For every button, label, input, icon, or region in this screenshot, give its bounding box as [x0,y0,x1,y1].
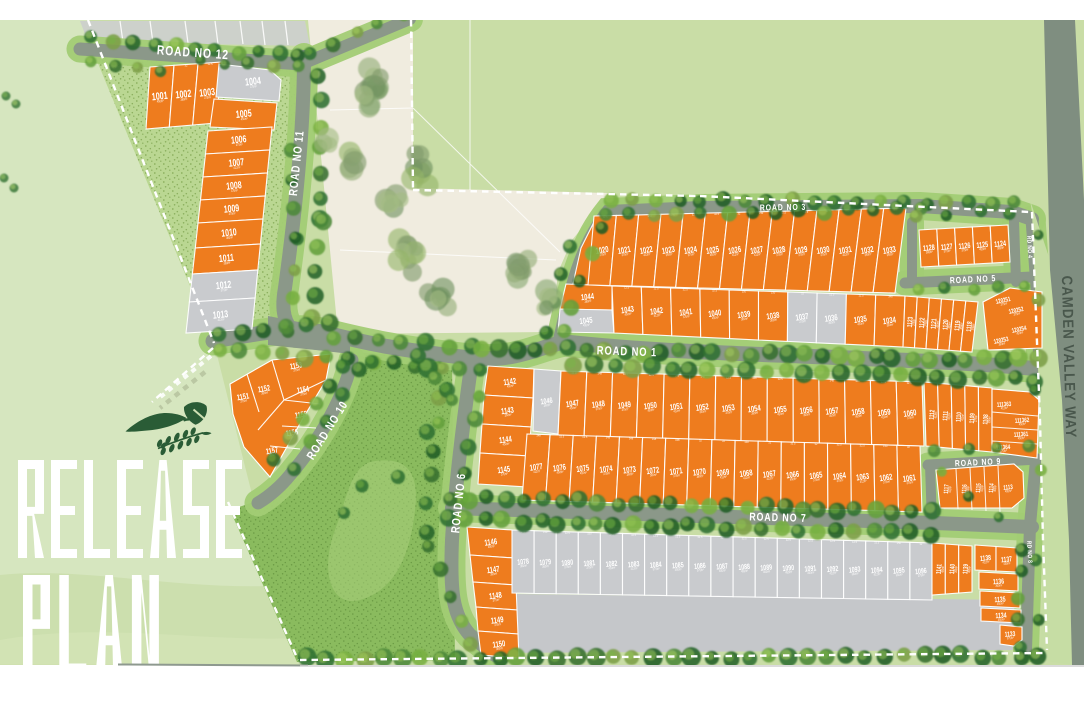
svg-text:360m²: 360m² [926,249,933,254]
svg-text:32.5: 32.5 [697,535,703,539]
svg-text:375m²: 375m² [906,480,913,486]
svg-text:450m²: 450m² [741,568,748,573]
svg-text:12.5: 12.5 [852,540,858,544]
svg-text:32.5: 32.5 [712,289,718,293]
svg-text:12.5: 12.5 [830,539,836,543]
svg-text:12.5: 12.5 [624,286,630,290]
svg-text:360m²: 360m² [896,572,903,577]
svg-text:412m²: 412m² [829,570,836,575]
svg-text:375m²: 375m² [943,248,950,253]
svg-text:375m²: 375m² [973,415,978,422]
svg-text:348: 348 [536,434,541,438]
svg-text:450m²: 450m² [807,570,814,575]
svg-text:12.5: 12.5 [565,531,571,535]
svg-text:450m²: 450m² [967,566,972,573]
svg-text:375m²: 375m² [725,410,732,416]
svg-text:348: 348 [606,436,611,440]
svg-text:375m²: 375m² [621,407,628,413]
svg-text:450m²: 450m² [997,601,1004,606]
svg-text:450m²: 450m² [979,246,986,251]
svg-text:450m²: 450m² [998,617,1005,622]
svg-text:450m²: 450m² [583,322,590,327]
svg-text:RD NO 4: RD NO 4 [1025,236,1033,259]
svg-text:348: 348 [629,436,634,440]
svg-text:360m²: 360m² [543,402,550,408]
svg-text:450m²: 450m² [569,405,576,411]
svg-text:12.5: 12.5 [786,538,792,542]
svg-text:450m²: 450m² [1018,435,1025,440]
svg-text:360m²: 360m² [490,571,497,577]
svg-text:412m²: 412m² [982,559,989,564]
svg-text:412m²: 412m² [233,165,240,170]
svg-text:32.5: 32.5 [860,443,866,447]
svg-text:360m²: 360m² [542,564,549,569]
svg-text:450m²: 450m² [1005,488,1012,493]
svg-text:450m²: 450m² [502,441,509,447]
svg-text:450m²: 450m² [777,411,784,417]
svg-text:450m²: 450m² [719,568,726,573]
svg-text:450m²: 450m² [763,569,770,574]
svg-text:412m²: 412m² [881,414,888,420]
svg-text:450m²: 450m² [157,98,164,103]
svg-text:360m²: 360m² [997,245,1004,250]
svg-text:12.5: 12.5 [808,538,814,542]
svg-text:412m²: 412m² [673,408,680,414]
svg-text:360m²: 360m² [803,412,810,418]
svg-text:412m²: 412m² [766,476,773,482]
svg-text:360m²: 360m² [650,472,657,478]
svg-text:360m²: 360m² [699,409,706,415]
svg-text:450m²: 450m² [1003,561,1010,566]
svg-text:360m²: 360m² [751,410,758,416]
svg-text:450m²: 450m² [785,569,792,574]
svg-text:32.5: 32.5 [714,212,720,216]
svg-text:375m²: 375m² [250,84,257,89]
svg-text:375m²: 375m² [961,247,968,252]
svg-text:375m²: 375m² [236,142,243,147]
svg-text:450m²: 450m² [488,544,495,550]
svg-text:150: 150 [543,530,548,534]
svg-text:360m²: 360m² [226,235,233,240]
svg-text:ROAD NO 3: ROAD NO 3 [760,202,807,213]
svg-text:375m²: 375m² [918,573,925,578]
svg-text:412m²: 412m² [1001,405,1008,410]
svg-text:450m²: 450m² [857,321,864,327]
svg-text:360m²: 360m² [828,320,835,326]
svg-text:412m²: 412m² [720,474,727,480]
svg-text:12.5: 12.5 [858,294,864,298]
svg-text:450m²: 450m² [608,565,615,570]
svg-text:450m²: 450m² [992,485,997,492]
svg-text:412m²: 412m² [979,485,984,492]
svg-text:375m²: 375m² [1007,635,1014,640]
svg-text:375m²: 375m² [603,471,610,477]
svg-text:360m²: 360m² [520,563,527,568]
svg-text:12.5: 12.5 [764,537,770,541]
svg-text:32.5: 32.5 [742,536,748,540]
svg-text:360m²: 360m² [496,646,503,652]
svg-text:32.5: 32.5 [631,533,637,537]
svg-text:360m²: 360m² [696,473,703,479]
svg-text:375m²: 375m² [492,597,499,603]
svg-text:412m²: 412m² [743,475,750,481]
svg-text:32.5: 32.5 [837,443,843,447]
svg-text:150: 150 [883,444,888,448]
svg-text:412m²: 412m² [860,478,867,484]
svg-text:450m²: 450m² [940,566,945,573]
svg-text:12.5: 12.5 [675,534,681,538]
svg-text:412m²: 412m² [947,486,952,493]
svg-text:450m²: 450m² [580,470,587,476]
svg-text:375m²: 375m² [673,473,680,479]
svg-text:32.5: 32.5 [874,541,880,545]
svg-text:412m²: 412m² [217,317,224,322]
svg-text:375m²: 375m² [228,211,235,216]
svg-text:450m²: 450m² [675,567,682,572]
svg-text:360m²: 360m² [626,471,633,477]
svg-text:450m²: 450m² [507,383,514,389]
svg-text:375m²: 375m² [652,566,659,571]
svg-text:375m²: 375m² [204,95,211,100]
svg-text:32.5: 32.5 [207,62,213,66]
svg-text:12.5: 12.5 [582,435,588,439]
svg-text:360m²: 360m² [770,317,777,323]
svg-text:375m²: 375m² [683,314,690,320]
svg-text:375m²: 375m² [231,188,238,193]
svg-text:348: 348 [744,440,749,444]
svg-text:360m²: 360m² [970,323,975,330]
svg-text:348: 348 [675,438,680,442]
svg-text:375m²: 375m² [799,318,806,324]
svg-text:375m²: 375m² [220,287,227,292]
svg-text:375m²: 375m² [836,478,843,484]
svg-text:375m²: 375m² [494,622,501,628]
svg-text:450m²: 450m² [241,116,248,121]
svg-text:360m²: 360m² [995,583,1002,588]
svg-text:412m²: 412m² [653,312,660,318]
svg-text:375m²: 375m² [813,477,820,483]
svg-text:360m²: 360m² [741,316,748,322]
svg-text:150: 150 [742,290,747,294]
svg-text:412m²: 412m² [630,566,637,571]
svg-text:412m²: 412m² [933,411,938,418]
svg-text:412m²: 412m² [960,414,965,421]
svg-text:450m²: 450m² [829,413,836,419]
svg-text:360m²: 360m² [584,299,591,304]
svg-text:12.5: 12.5 [829,293,835,297]
svg-text:12.5: 12.5 [778,377,784,381]
svg-text:412m²: 412m² [873,572,880,577]
svg-text:450m²: 450m² [855,413,862,419]
svg-text:360m²: 360m² [180,97,187,102]
svg-text:375m²: 375m² [564,564,571,569]
svg-text:348: 348 [888,295,893,299]
svg-text:375m²: 375m² [586,565,593,570]
svg-text:150: 150 [587,532,592,536]
svg-text:450m²: 450m² [556,469,563,475]
svg-text:360m²: 360m² [223,260,230,265]
svg-text:12.5: 12.5 [653,287,659,291]
svg-text:375m²: 375m² [697,567,704,572]
svg-text:150: 150 [897,541,902,545]
svg-text:ROAD NO 1: ROAD NO 1 [597,344,658,359]
svg-text:450m²: 450m² [712,315,719,321]
svg-text:360m²: 360m² [987,416,992,423]
svg-text:450m²: 450m² [647,407,654,413]
svg-text:32.5: 32.5 [790,441,796,445]
svg-text:450m²: 450m² [624,311,631,317]
svg-text:375m²: 375m² [883,479,890,485]
svg-text:32.5: 32.5 [683,288,689,292]
svg-text:360m²: 360m² [504,412,511,418]
svg-text:375m²: 375m² [595,406,602,412]
svg-text:348: 348 [830,378,835,382]
svg-text:150: 150 [771,291,776,295]
svg-text:360m²: 360m² [953,566,958,573]
svg-text:360m²: 360m² [886,322,893,328]
svg-text:348: 348 [752,376,757,380]
svg-text:32.5: 32.5 [559,434,565,438]
svg-text:450m²: 450m² [790,476,797,482]
svg-text:450m²: 450m² [1019,421,1026,426]
svg-text:375m²: 375m² [907,415,914,421]
svg-text:375m²: 375m² [501,471,508,477]
svg-text:412m²: 412m² [533,469,540,475]
svg-text:ROAD NO 7: ROAD NO 7 [749,511,807,525]
svg-text:360m²: 360m² [851,571,858,576]
svg-text:RD NO 8: RD NO 8 [1025,541,1033,564]
svg-text:348: 348 [652,437,657,441]
svg-text:412m²: 412m² [946,413,951,420]
